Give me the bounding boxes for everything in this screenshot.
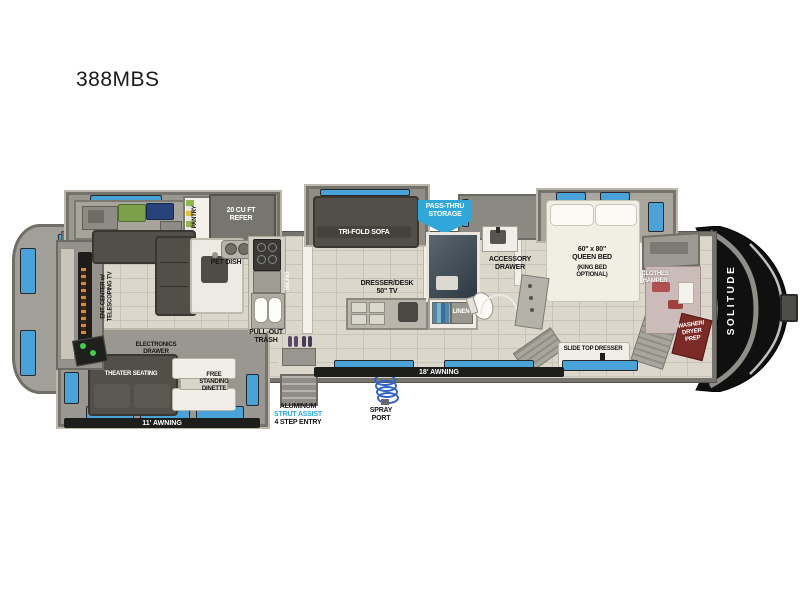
pillow-icon: [550, 204, 594, 226]
cutting-board-icon: [118, 204, 146, 222]
awning-main-bar: 18' AWNING: [314, 367, 564, 377]
door-hinge-icon: [528, 284, 532, 288]
desk-chair-icon: [398, 302, 418, 322]
rear-window-icon: [20, 248, 36, 294]
electronics-led-icon: [90, 350, 96, 356]
desk-drawer-icon: [369, 302, 385, 313]
burner-icon: [257, 243, 266, 252]
queen-bed-label: 60" x 80" QUEEN BED: [554, 246, 630, 262]
pull-out-trash-label: PULL-OUT TRASH: [236, 329, 296, 345]
floorplan: 388MBS SOLITUDE PANTRY 20 CU FT REFER TR…: [0, 0, 800, 600]
tri-fold-sofa-label: TRI-FOLD SOFA: [318, 229, 410, 237]
theater-cushion-icon: [94, 384, 130, 408]
brand-logo: SOLITUDE: [726, 255, 740, 345]
shoes-icon: [302, 336, 306, 347]
sofa-cushion-line: [160, 286, 188, 287]
island-faucet-icon: [212, 252, 218, 258]
bedroom-side-window-icon: [648, 202, 664, 232]
bath-faucet-icon: [496, 227, 500, 233]
towel-icon: [432, 302, 451, 324]
door-hinge-icon: [529, 296, 533, 300]
burner-icon: [268, 243, 277, 252]
desk-drawer-icon: [351, 302, 367, 313]
living-slide-corner-window-icon: [64, 372, 79, 404]
shoes-icon: [288, 336, 292, 347]
dresser-desk-label: DRESSER/DESK 50" TV: [350, 280, 424, 296]
dinette-label: FREE STANDING DINETTE: [192, 372, 236, 393]
rear-window-icon: [20, 330, 36, 376]
theater-seating-label: THEATER SEATING: [90, 371, 172, 378]
sofa-slide-window-icon: [320, 189, 410, 196]
fireplace-glow-icon: [81, 268, 86, 334]
entry-landing: [282, 348, 316, 366]
tri-fold-sofa: [313, 196, 419, 248]
desk-drawer-icon: [369, 314, 385, 325]
main-window-icon: [562, 360, 638, 371]
sofa-cushion-line: [160, 262, 188, 263]
entry-steps-label-line2: STRUT ASSIST: [262, 411, 334, 419]
pass-thru-label: PASS-THRU STORAGE: [419, 203, 471, 219]
electronics-led-icon: [80, 343, 86, 349]
closet-shelf-icon: [650, 242, 688, 254]
shoes-icon: [294, 336, 298, 347]
burner-icon: [257, 255, 266, 264]
model-title: 388MBS: [76, 68, 160, 92]
micro-label: MICRO: [285, 258, 293, 304]
awning-rear-label: 11' AWNING: [142, 420, 182, 427]
shower: [426, 232, 480, 302]
entry-steps-label-line1: ALUMINUM: [262, 403, 334, 411]
pillow-icon: [595, 204, 637, 226]
electronics-drawer-label: ELECTRONICS DRAWER: [120, 342, 192, 356]
refer-label: 20 CU FT REFER: [212, 207, 270, 223]
living-slide-corner-window-icon: [246, 374, 259, 406]
spray-port-label: SPRAY PORT: [358, 407, 404, 423]
shoes-icon: [308, 336, 312, 347]
desk-drawer-icon: [351, 314, 367, 325]
clothes-hamper-label: CLOTHES HAMPER: [632, 271, 678, 285]
sink-bowl-icon: [268, 297, 282, 323]
micro-cabinet: [253, 271, 281, 293]
door-hinge-icon: [530, 308, 534, 312]
burner-icon: [268, 255, 277, 264]
hamper-box-icon: [678, 282, 694, 304]
slide-top-dresser-label: SLIDE TOP DRESSER: [558, 346, 628, 353]
sink-bowl-icon: [254, 297, 268, 323]
pet-dish-label: PET DISH: [203, 259, 249, 267]
king-option-label: (KING BED OPTIONAL): [558, 265, 626, 279]
spray-nozzle-icon: [381, 399, 389, 405]
hitch-pin: [780, 294, 798, 322]
awning-rear-bar: 11' AWNING: [64, 418, 260, 428]
theater-cushion-icon: [134, 384, 170, 408]
shower-seat-icon: [436, 276, 458, 290]
awning-main-label: 18' AWNING: [419, 369, 459, 376]
ent-center-label: ENT. CENTER w/ TELESCOPING TV: [101, 251, 116, 343]
serving-tray-icon: [146, 203, 174, 220]
accessory-drawer-label: ACCESSORY DRAWER: [486, 256, 534, 272]
kitchen-sink-bowl-icon: [88, 210, 104, 223]
wall-living-den: [302, 236, 313, 334]
pet-bowl-icon: [225, 243, 237, 255]
entry-steps-label-line3: 4 STEP ENTRY: [262, 419, 334, 427]
entry-steps: [280, 374, 318, 406]
